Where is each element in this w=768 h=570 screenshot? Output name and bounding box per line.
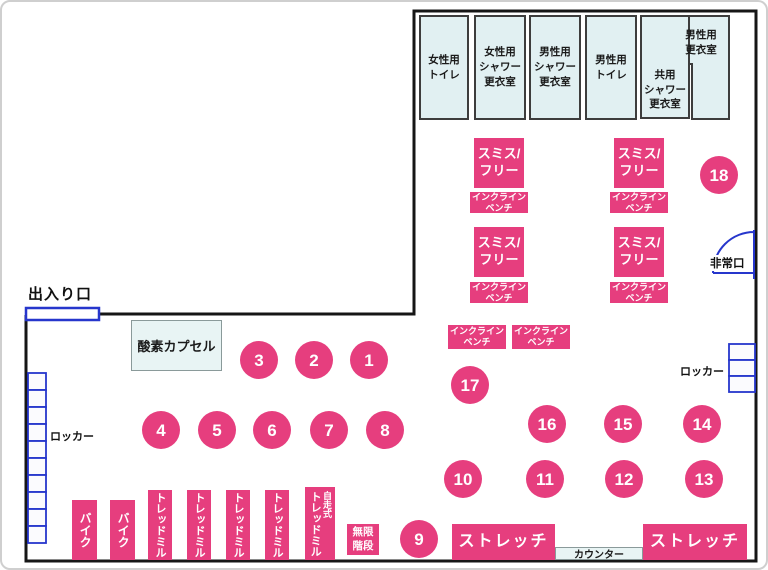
stretch-area-box-1: ストレッチ <box>452 524 555 560</box>
station-circle-3: 3 <box>240 341 278 379</box>
station-circle-18: 18 <box>700 156 738 194</box>
incline-bench-box-4: インクライン ベンチ <box>610 282 668 303</box>
room-womens-shower: 女性用 シャワー 更衣室 <box>474 15 526 120</box>
treadmill-label: トレッドミル <box>232 492 244 558</box>
station-circle-13: 13 <box>685 460 723 498</box>
station-circle-5: 5 <box>198 411 236 449</box>
bike-box-1: バイク <box>72 500 97 560</box>
treadmill-box-1: トレッドミル <box>148 490 172 560</box>
locker-label-left: ロッカー <box>50 428 94 444</box>
station-circle-17: 17 <box>451 366 489 404</box>
gym-floor-plan: 出入り口 女性用 トイレ 女性用 シャワー 更衣室 男性用 シャワー 更衣室 男… <box>0 0 768 570</box>
treadmill-label: トレッドミル <box>154 492 166 558</box>
incline-bench-box-1: インクライン ベンチ <box>470 192 528 213</box>
oxygen-capsule-box: 酸素カプセル <box>131 320 222 371</box>
room-womens-toilet: 女性用 トイレ <box>419 15 469 120</box>
treadmill-box-4: トレッドミル <box>265 490 289 560</box>
entrance-door <box>26 308 99 320</box>
treadmill-label: トレッドミル <box>271 492 283 558</box>
bike-label: バイク <box>116 512 129 548</box>
treadmill-box-2: トレッドミル <box>187 490 211 560</box>
station-circle-16: 16 <box>528 405 566 443</box>
treadmill-label: トレッドミル <box>309 491 321 557</box>
incline-bench-box-2: インクライン ベンチ <box>610 192 668 213</box>
bike-label: バイク <box>78 512 91 548</box>
station-circle-9: 9 <box>400 520 438 558</box>
treadmill-label: トレッドミル <box>193 492 205 558</box>
smith-free-box-4: スミス/ フリー <box>614 227 664 277</box>
station-circle-2: 2 <box>295 341 333 379</box>
station-circle-4: 4 <box>142 411 180 449</box>
station-circle-11: 11 <box>526 460 564 498</box>
station-circle-1: 1 <box>350 341 388 379</box>
emergency-exit-label: 非常口 <box>709 255 746 271</box>
stretch-area-box-2: ストレッチ <box>643 524 747 560</box>
locker-bank-left <box>28 373 46 543</box>
locker-label-right: ロッカー <box>680 363 724 379</box>
room-mens-shower: 男性用 シャワー 更衣室 <box>529 15 581 120</box>
treadmill-box-3: トレッドミル <box>226 490 250 560</box>
station-circle-6: 6 <box>253 411 291 449</box>
bike-box-2: バイク <box>110 500 135 560</box>
room-mens-toilet: 男性用 トイレ <box>585 15 637 120</box>
smith-free-box-1: スミス/ フリー <box>474 138 524 188</box>
self-propelled-label: 自走式 <box>321 487 331 518</box>
room-mens-locker-room-label: 男性用 更衣室 <box>676 26 726 60</box>
incline-bench-box-3: インクライン ベンチ <box>470 282 528 303</box>
entrance-label: 出入り口 <box>28 283 92 304</box>
self-propelled-treadmill-box: トレッドミル 自走式 <box>305 487 335 560</box>
smith-free-box-2: スミス/ フリー <box>614 138 664 188</box>
counter-box: カウンター <box>555 547 643 560</box>
station-circle-14: 14 <box>683 405 721 443</box>
smith-free-box-3: スミス/ フリー <box>474 227 524 277</box>
station-circle-8: 8 <box>366 411 404 449</box>
station-circle-7: 7 <box>310 411 348 449</box>
incline-bench-box-6: インクライン ベンチ <box>512 325 570 349</box>
station-circle-12: 12 <box>605 460 643 498</box>
station-circle-10: 10 <box>444 460 482 498</box>
locker-bank-right <box>729 344 755 392</box>
station-circle-15: 15 <box>604 405 642 443</box>
infinite-stairs-box: 無限 階段 <box>347 524 379 555</box>
incline-bench-box-5: インクライン ベンチ <box>448 325 506 349</box>
